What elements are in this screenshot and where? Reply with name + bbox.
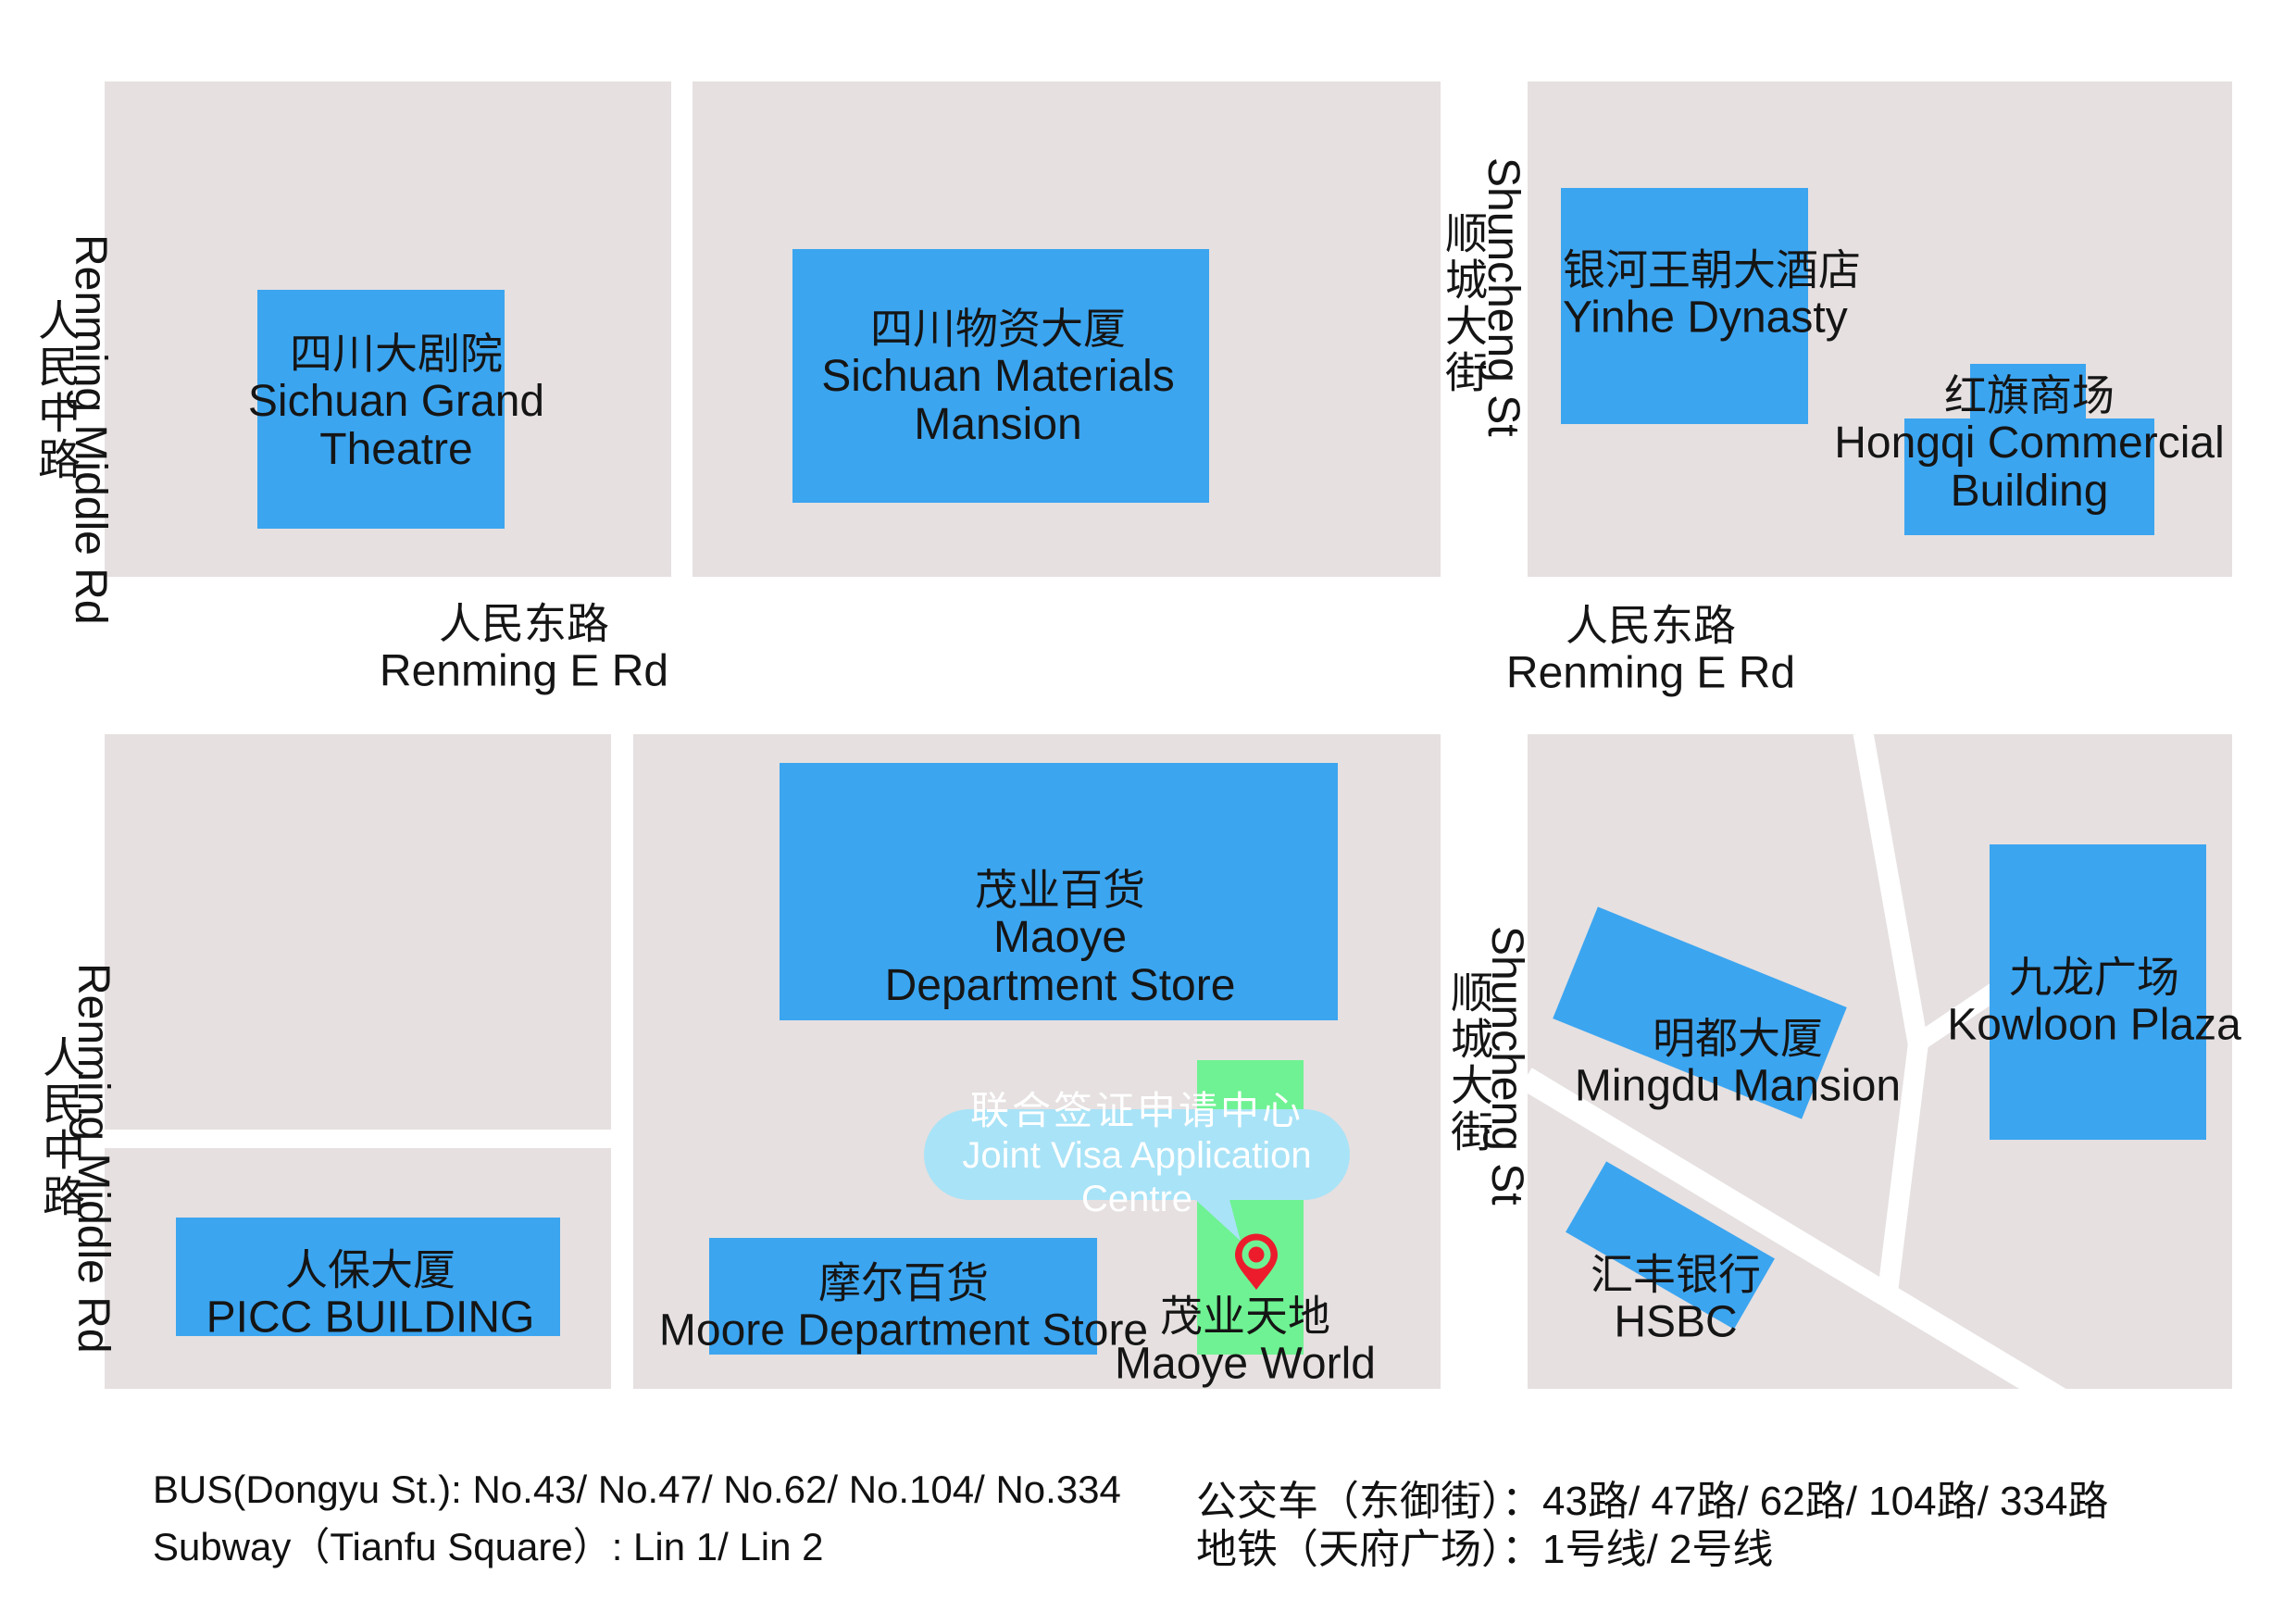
label-mingdu-en: Mingdu Mansion [1575,1062,1901,1111]
label-maoye-world: 茂业天地 Maoye World [1115,1293,1376,1388]
label-kowloon-en: Kowloon Plaza [1947,1001,2241,1050]
label-theatre-zh: 四川大剧院 [248,331,544,378]
label-sichuan-materials-mansion: 四川物资大厦 Sichuan Materials Mansion [821,306,1175,450]
label-maoye-en2: Department Store [885,962,1236,1011]
road-label-renming-e-east-zh: 人民东路 [1506,602,1795,649]
label-yinhe-dynasty: 银河王朝大酒店 Yinhe Dynasty [1563,246,1861,342]
label-picc-en: PICC BUILDING [206,1293,535,1343]
label-picc-zh: 人保大厦 [206,1246,535,1293]
road-label-renming-e-west-zh: 人民东路 [380,600,668,647]
label-maoye-world-zh: 茂业天地 [1115,1293,1376,1340]
city-block-bottom-left-upper [105,734,611,1130]
label-hongqi-zh: 红旗商场 [1834,372,2224,419]
label-materials-zh: 四川物资大厦 [821,306,1175,353]
road-label-renming-e-rd-west: 人民东路 Renming E Rd [380,600,668,695]
road-label-renming-e-east-en: Renming E Rd [1506,649,1795,698]
label-sichuan-grand-theatre: 四川大剧院 Sichuan Grand Theatre [248,331,544,475]
label-maoye-en1: Maoye [885,914,1236,963]
label-picc-building: 人保大厦 PICC BUILDING [206,1246,535,1342]
road-label-renming-e-rd-east: 人民东路 Renming E Rd [1506,602,1795,697]
label-maoye-world-en: Maoye World [1115,1340,1376,1389]
label-kowloon-zh: 九龙广场 [1947,954,2241,1001]
label-hsbc-en: HSBC [1591,1298,1761,1347]
label-maoye-zh: 茂业百货 [885,867,1236,914]
road-label-renming-middle-bottom-en: Renming Middle Rd [68,963,119,1354]
label-maoye-department-store: 茂业百货 Maoye Department Store [885,867,1236,1011]
label-hongqi-en2: Building [1834,468,2224,517]
visa-centre-location-map: 四川大剧院 Sichuan Grand Theatre 四川物资大厦 Sichu… [0,0,2296,1624]
road-label-shuncheng-top-en: Shuncheng St [1478,157,1529,437]
footer-bus-info-en: BUS(Dongyu St.): No.43/ No.47/ No.62/ No… [153,1468,1121,1512]
joint-visa-application-centre-callout: 联合签证申请中心 Joint Visa Application Centre [924,1109,1350,1200]
label-mingdu-zh: 明都大厦 [1575,1015,1901,1062]
label-yinhe-en: Yinhe Dynasty [1563,294,1861,343]
road-label-renming-e-west-en: Renming E Rd [380,647,668,696]
location-pin-icon [1233,1232,1279,1291]
road-label-shuncheng-bottom-en: Shuncheng St [1481,926,1532,1206]
callout-zh: 联合签证申请中心 [970,1088,1304,1134]
label-theatre-en2: Theatre [248,426,544,475]
label-materials-en1: Sichuan Materials [821,353,1175,402]
label-hsbc: 汇丰银行 HSBC [1591,1251,1761,1346]
road-label-renming-middle-top-en: Renming Middle Rd [65,234,116,625]
label-moore-en: Moore Department Store [659,1306,1148,1355]
label-hongqi-commercial-building: 红旗商场 Hongqi Commercial Building [1834,372,2224,517]
label-kowloon-plaza: 九龙广场 Kowloon Plaza [1947,954,2241,1049]
label-hongqi-en1: Hongqi Commercial [1834,419,2224,468]
footer-subway-info-en: Subway（Tianfu Square）: Lin 1/ Lin 2 [153,1516,824,1572]
label-hsbc-zh: 汇丰银行 [1591,1251,1761,1298]
label-materials-en2: Mansion [821,401,1175,450]
footer-subway-info-zh: 地铁（天府广场）：1号线/ 2号线 [1196,1516,1773,1575]
label-moore-zh: 摩尔百货 [659,1259,1148,1306]
callout-en: Joint Visa Application Centre [924,1134,1350,1221]
label-moore-department-store: 摩尔百货 Moore Department Store [659,1259,1148,1355]
label-yinhe-zh: 银河王朝大酒店 [1563,246,1861,294]
label-mingdu-mansion: 明都大厦 Mingdu Mansion [1575,1015,1901,1110]
label-theatre-en1: Sichuan Grand [248,378,544,427]
road-segment-north [1853,734,1928,1044]
